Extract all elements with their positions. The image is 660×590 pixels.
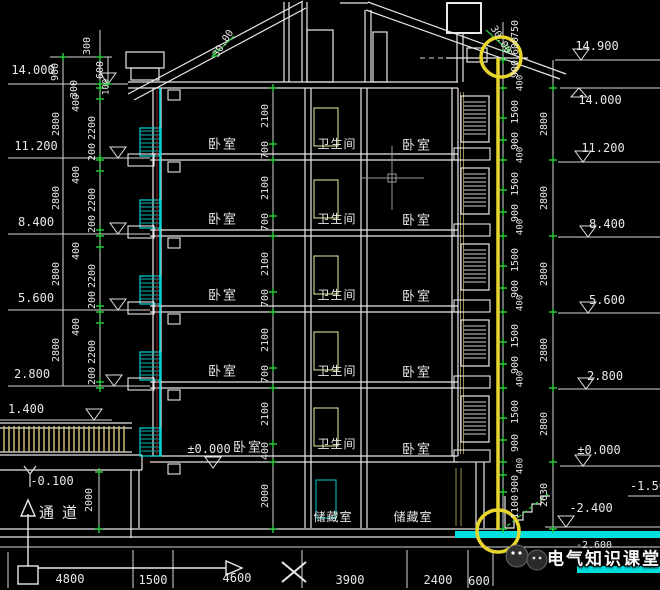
watermark-logo-1 bbox=[506, 545, 528, 567]
cad-drawing-canvas[interactable]: 14.00011.2008.4005.6002.8001.400-0.100±0… bbox=[0, 0, 660, 590]
watermark-text: 电气知识课堂 bbox=[547, 545, 660, 570]
building-section-drawing bbox=[0, 0, 660, 590]
ground-cyan-bar bbox=[455, 531, 660, 538]
watermark-logo-2 bbox=[527, 550, 547, 570]
